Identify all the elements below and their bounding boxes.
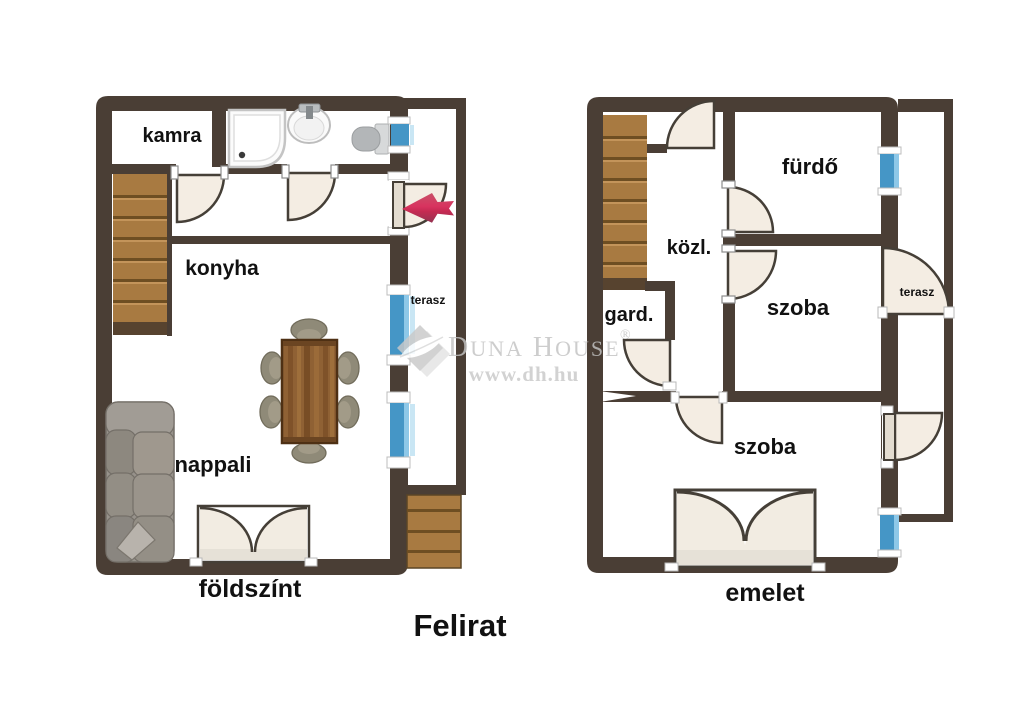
svg-text:konyha: konyha [185, 257, 259, 280]
svg-text:DUNA HOUSE: DUNA HOUSE [448, 332, 621, 363]
svg-text:www.dh.hu: www.dh.hu [469, 362, 580, 386]
svg-text:gard.: gard. [605, 304, 654, 326]
svg-text:terasz: terasz [411, 293, 446, 307]
svg-text:szoba: szoba [767, 295, 830, 320]
svg-text:nappali: nappali [174, 452, 251, 477]
svg-text:®: ® [620, 328, 631, 343]
svg-text:közl.: közl. [667, 237, 711, 259]
svg-text:fürdő: fürdő [782, 154, 838, 179]
svg-text:szoba: szoba [734, 434, 797, 459]
svg-text:terasz: terasz [900, 285, 935, 299]
svg-text:emelet: emelet [725, 579, 805, 607]
svg-text:kamra: kamra [143, 125, 203, 147]
svg-text:Felirat: Felirat [413, 608, 506, 643]
svg-text:földszínt: földszínt [199, 575, 302, 603]
